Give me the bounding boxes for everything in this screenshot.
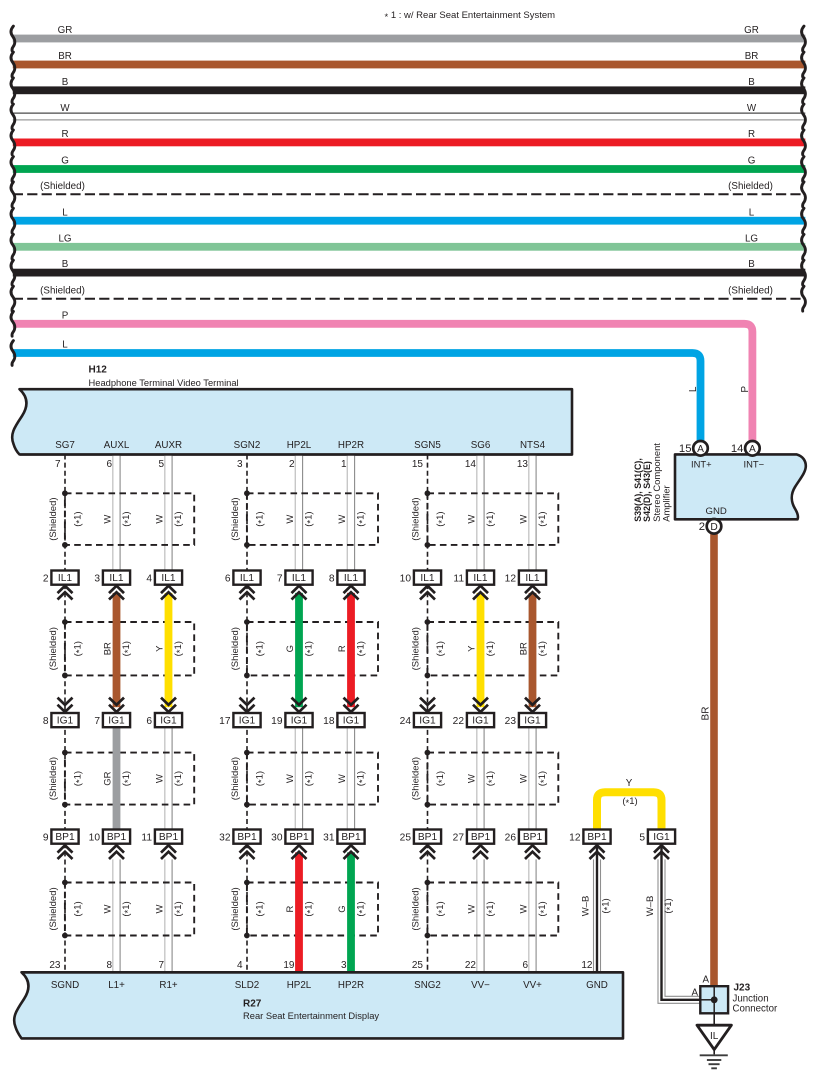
svg-text:L: L [688, 386, 699, 392]
svg-text:3: 3 [237, 459, 243, 470]
svg-text:25: 25 [412, 960, 424, 971]
svg-text:R: R [748, 129, 755, 140]
svg-text:IL1: IL1 [344, 573, 358, 584]
svg-text:1: 1 [341, 459, 347, 470]
svg-text:IL: IL [710, 1031, 719, 1042]
svg-text:W: W [285, 515, 296, 524]
svg-text:(Shielded): (Shielded) [40, 285, 85, 296]
svg-text:W: W [285, 774, 296, 783]
svg-text:G: G [748, 156, 756, 167]
svg-text:7: 7 [55, 459, 61, 470]
svg-text:W: W [155, 774, 166, 783]
svg-text:L1+: L1+ [108, 980, 125, 991]
svg-text:(Shielded): (Shielded) [48, 757, 59, 800]
svg-text:BP1: BP1 [587, 832, 607, 843]
svg-text:BR: BR [58, 51, 72, 62]
svg-text:L: L [62, 340, 68, 351]
svg-text:(Shielded): (Shielded) [410, 887, 421, 930]
svg-text:P: P [62, 310, 69, 321]
svg-text:2: 2 [43, 573, 49, 584]
svg-text:W–B: W–B [645, 896, 656, 917]
svg-text:Y: Y [155, 645, 166, 652]
svg-text:Connector: Connector [733, 1004, 778, 1015]
svg-text:27: 27 [453, 832, 465, 843]
svg-text:(Shielded): (Shielded) [230, 757, 241, 800]
svg-text:(Shielded): (Shielded) [230, 497, 241, 540]
svg-text:IL1: IL1 [109, 573, 123, 584]
svg-text:HP2L: HP2L [287, 440, 312, 451]
svg-text:B: B [748, 77, 755, 88]
svg-text:7: 7 [94, 716, 100, 727]
svg-text:J23: J23 [734, 982, 751, 993]
svg-text:R: R [285, 905, 296, 912]
svg-text:12: 12 [569, 832, 581, 843]
svg-text:W: W [519, 774, 530, 783]
svg-text:D: D [710, 522, 717, 533]
svg-text:(Shielded): (Shielded) [230, 887, 241, 930]
svg-text:(Shielded): (Shielded) [40, 181, 85, 192]
svg-text:7: 7 [277, 573, 283, 584]
svg-text:4: 4 [237, 960, 243, 971]
svg-text:6: 6 [146, 716, 152, 727]
svg-text:IG1: IG1 [108, 716, 125, 727]
svg-text:SG6: SG6 [471, 440, 491, 451]
svg-text:32: 32 [219, 832, 231, 843]
svg-text:14: 14 [731, 443, 744, 455]
svg-text:Y: Y [626, 778, 633, 789]
svg-text:L: L [749, 207, 755, 218]
svg-text:R: R [337, 645, 348, 652]
svg-text:(Shielded): (Shielded) [410, 757, 421, 800]
svg-text:14: 14 [465, 459, 477, 470]
svg-text:5: 5 [639, 832, 645, 843]
svg-text:2: 2 [289, 459, 295, 470]
svg-text:(Shielded): (Shielded) [230, 627, 241, 670]
svg-text:INT−: INT− [744, 458, 765, 469]
svg-text:SNG2: SNG2 [414, 980, 441, 991]
svg-text:W: W [467, 515, 478, 524]
svg-text:Amplifier: Amplifier [661, 485, 672, 521]
svg-text:8: 8 [106, 960, 112, 971]
svg-text:(Shielded): (Shielded) [48, 887, 59, 930]
svg-text:24: 24 [400, 716, 412, 727]
svg-text:G: G [285, 645, 296, 652]
svg-text:10: 10 [400, 573, 412, 584]
svg-text:GND: GND [706, 506, 727, 517]
svg-text:BR: BR [700, 707, 711, 721]
svg-text:25: 25 [400, 832, 412, 843]
svg-text:H12: H12 [89, 365, 108, 376]
svg-text:(Shielded): (Shielded) [728, 181, 773, 192]
svg-text:LG: LG [745, 233, 758, 244]
svg-text:W: W [103, 515, 114, 524]
svg-text:GR: GR [58, 25, 73, 36]
svg-text:31: 31 [323, 832, 335, 843]
svg-text:15: 15 [679, 443, 692, 455]
svg-text:L: L [62, 207, 68, 218]
svg-text:BP1: BP1 [55, 832, 75, 843]
svg-text:BP1: BP1 [523, 832, 543, 843]
svg-text:Headphone Terminal Video Termi: Headphone Terminal Video Terminal [89, 378, 239, 388]
svg-text:IL1: IL1 [240, 573, 254, 584]
svg-text:IG1: IG1 [472, 716, 489, 727]
svg-text:G: G [61, 156, 69, 167]
svg-text:IG1: IG1 [419, 716, 436, 727]
svg-text:6: 6 [106, 459, 112, 470]
svg-text:7: 7 [158, 960, 164, 971]
svg-text:W: W [467, 774, 478, 783]
svg-text:IL1: IL1 [525, 573, 539, 584]
svg-text:10: 10 [89, 832, 101, 843]
svg-text:IG1: IG1 [239, 716, 256, 727]
svg-text:(Shielded): (Shielded) [48, 497, 59, 540]
svg-text:SG7: SG7 [55, 440, 75, 451]
svg-text:11: 11 [453, 573, 464, 584]
svg-text:SGND: SGND [51, 980, 79, 991]
svg-text:5: 5 [158, 459, 164, 470]
svg-text:BR: BR [103, 642, 114, 655]
svg-text:SGN2: SGN2 [234, 440, 261, 451]
svg-text:12: 12 [581, 960, 593, 971]
svg-text:13: 13 [517, 459, 529, 470]
svg-text:6: 6 [522, 960, 528, 971]
svg-text:G: G [337, 905, 348, 912]
svg-text:IG1: IG1 [160, 716, 177, 727]
svg-text:VV−: VV− [471, 980, 490, 991]
svg-text:B: B [62, 77, 69, 88]
svg-text:GND: GND [586, 980, 608, 991]
svg-text:2: 2 [699, 521, 705, 533]
svg-text:IG1: IG1 [57, 716, 74, 727]
svg-text:W: W [103, 904, 114, 913]
svg-text:BR: BR [519, 642, 530, 655]
svg-text:HP2L: HP2L [287, 980, 312, 991]
svg-text:A: A [691, 987, 698, 998]
svg-text:W: W [519, 904, 530, 913]
svg-text:P: P [740, 386, 751, 393]
svg-text:SGN5: SGN5 [414, 440, 441, 451]
svg-text:R27: R27 [243, 999, 262, 1010]
svg-text:IG1: IG1 [343, 716, 360, 727]
svg-text:17: 17 [219, 716, 231, 727]
svg-text:4: 4 [146, 573, 152, 584]
svg-text:8: 8 [43, 716, 49, 727]
svg-text:HP2R: HP2R [338, 440, 364, 451]
svg-text:23: 23 [505, 716, 517, 727]
svg-text:12: 12 [505, 573, 517, 584]
svg-text:BP1: BP1 [289, 832, 309, 843]
svg-text:AUXL: AUXL [104, 440, 130, 451]
svg-text:19: 19 [283, 960, 295, 971]
svg-text:9: 9 [43, 832, 49, 843]
svg-text:IG1: IG1 [291, 716, 308, 727]
svg-text:IL1: IL1 [473, 573, 487, 584]
svg-text:3: 3 [341, 960, 347, 971]
svg-text:BP1: BP1 [237, 832, 257, 843]
svg-text:(Shielded): (Shielded) [410, 497, 421, 540]
svg-text:15: 15 [412, 459, 424, 470]
svg-text:B: B [62, 259, 69, 270]
svg-text:GR: GR [103, 771, 114, 785]
svg-text:A: A [697, 444, 704, 455]
svg-text:W: W [467, 904, 478, 913]
svg-text:IL1: IL1 [161, 573, 175, 584]
svg-text:IG1: IG1 [653, 832, 670, 843]
svg-text:W–B: W–B [581, 896, 592, 917]
svg-text:18: 18 [323, 716, 335, 727]
svg-text:W: W [337, 515, 348, 524]
svg-text:GR: GR [744, 25, 759, 36]
svg-text:30: 30 [271, 832, 283, 843]
svg-text:HP2R: HP2R [338, 980, 364, 991]
svg-text:23: 23 [49, 960, 61, 971]
svg-text:(Shielded): (Shielded) [48, 627, 59, 670]
svg-text:BP1: BP1 [471, 832, 491, 843]
svg-text:INT+: INT+ [691, 458, 712, 469]
svg-text:B: B [748, 259, 755, 270]
svg-text:VV+: VV+ [523, 980, 542, 991]
svg-text:R1+: R1+ [159, 980, 178, 991]
svg-text:IL1: IL1 [58, 573, 72, 584]
svg-text:A: A [749, 444, 756, 455]
svg-text:Y: Y [467, 645, 478, 652]
svg-text:BP1: BP1 [107, 832, 127, 843]
svg-text:A: A [702, 974, 709, 985]
svg-text:11: 11 [141, 832, 152, 843]
svg-text:NTS4: NTS4 [520, 440, 546, 451]
svg-text:W: W [337, 774, 348, 783]
svg-text:IL1: IL1 [420, 573, 434, 584]
svg-text:19: 19 [271, 716, 283, 727]
svg-text:W: W [155, 515, 166, 524]
svg-text:Rear Seat Entertainment Displa: Rear Seat Entertainment Display [243, 1011, 379, 1021]
svg-text:SLD2: SLD2 [235, 980, 260, 991]
svg-text:R: R [61, 129, 68, 140]
svg-text:W: W [519, 515, 530, 524]
svg-text:(Shielded): (Shielded) [410, 627, 421, 670]
svg-text:IG1: IG1 [524, 716, 541, 727]
svg-text:3: 3 [94, 573, 100, 584]
svg-text:BR: BR [745, 51, 759, 62]
svg-text:26: 26 [505, 832, 517, 843]
svg-text:6: 6 [225, 573, 231, 584]
svg-text:IL1: IL1 [292, 573, 306, 584]
svg-text:BP1: BP1 [341, 832, 361, 843]
svg-text:AUXR: AUXR [155, 440, 182, 451]
svg-text:22: 22 [453, 716, 465, 727]
svg-text:LG: LG [58, 233, 71, 244]
svg-text:W: W [155, 904, 166, 913]
svg-text:BP1: BP1 [159, 832, 179, 843]
svg-text:22: 22 [465, 960, 477, 971]
svg-text:BP1: BP1 [418, 832, 438, 843]
svg-text:(Shielded): (Shielded) [728, 285, 773, 296]
svg-text:8: 8 [329, 573, 335, 584]
